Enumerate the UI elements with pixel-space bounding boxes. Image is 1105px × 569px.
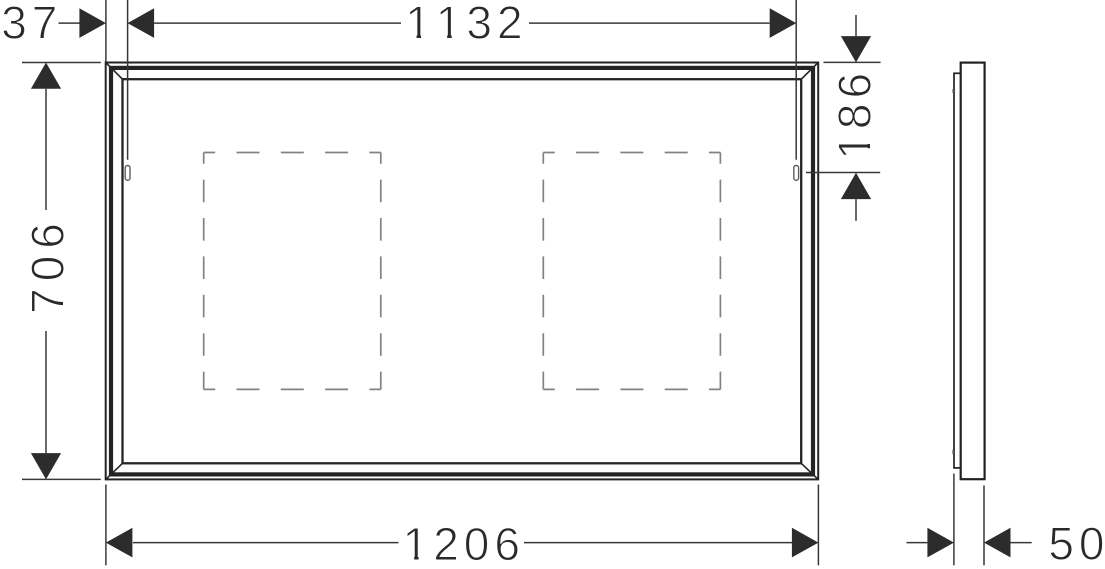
svg-text:1206: 1206 xyxy=(403,518,525,569)
svg-text:50: 50 xyxy=(1048,517,1105,569)
svg-text:706: 706 xyxy=(22,216,74,314)
svg-text:1132: 1132 xyxy=(405,0,527,49)
svg-text:186: 186 xyxy=(829,68,881,160)
svg-text:37: 37 xyxy=(1,0,62,49)
